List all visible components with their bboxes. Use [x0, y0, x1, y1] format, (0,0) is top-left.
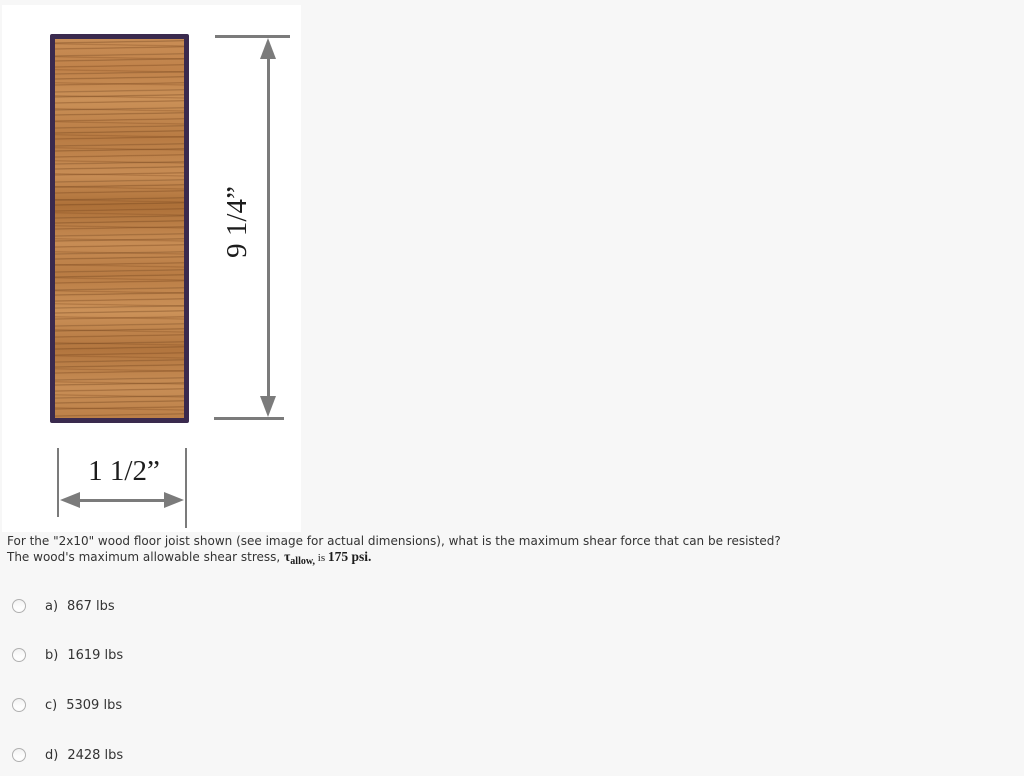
option-row-a: a)867 lbs: [12, 597, 115, 615]
quiz-page: { "page": { "background_color": "#f7f7f7…: [0, 0, 1024, 776]
arrow-down-icon: [260, 396, 276, 417]
radio-option-d[interactable]: [12, 748, 26, 762]
width-dimension-label: 1 1/2”: [65, 455, 183, 487]
option-label-b[interactable]: b)1619 lbs: [45, 648, 123, 663]
option-row-d: d)2428 lbs: [12, 746, 123, 764]
joist-cross-section: [50, 34, 189, 423]
radio-option-a[interactable]: [12, 599, 26, 613]
dim-vertical-line: [267, 45, 270, 411]
question-line-2: The wood's maximum allowable shear stres…: [7, 549, 1017, 569]
tau-subscript: allow,: [290, 556, 315, 567]
option-row-b: b)1619 lbs: [12, 646, 123, 664]
dim-extension-line-bottom: [214, 417, 284, 420]
stress-value: 175 psi.: [328, 549, 372, 564]
tau-symbol: τallow,: [284, 549, 315, 564]
dim-horizontal-line: [66, 499, 178, 502]
dim-tick-left: [57, 448, 59, 517]
option-label-a[interactable]: a)867 lbs: [45, 599, 115, 614]
dim-extension-line-top: [215, 35, 290, 38]
arrow-left-icon: [60, 492, 80, 508]
arrow-right-icon: [164, 492, 184, 508]
option-label-d[interactable]: d)2428 lbs: [45, 748, 123, 763]
option-label-c[interactable]: c)5309 lbs: [45, 698, 122, 713]
question-text: For the "2x10" wood floor joist shown (s…: [7, 534, 1017, 569]
arrow-up-icon: [260, 38, 276, 59]
connector-text: is: [315, 552, 328, 564]
radio-option-b[interactable]: [12, 648, 26, 662]
option-row-c: c)5309 lbs: [12, 696, 122, 714]
joist-figure-panel: 9 1/4” 1 1/2”: [2, 5, 301, 532]
radio-option-c[interactable]: [12, 698, 26, 712]
height-dimension-label: 9 1/4”: [221, 162, 253, 282]
dim-tick-right: [185, 448, 187, 528]
wood-grain-texture: [55, 39, 184, 418]
question-line-1: For the "2x10" wood floor joist shown (s…: [7, 534, 1017, 549]
